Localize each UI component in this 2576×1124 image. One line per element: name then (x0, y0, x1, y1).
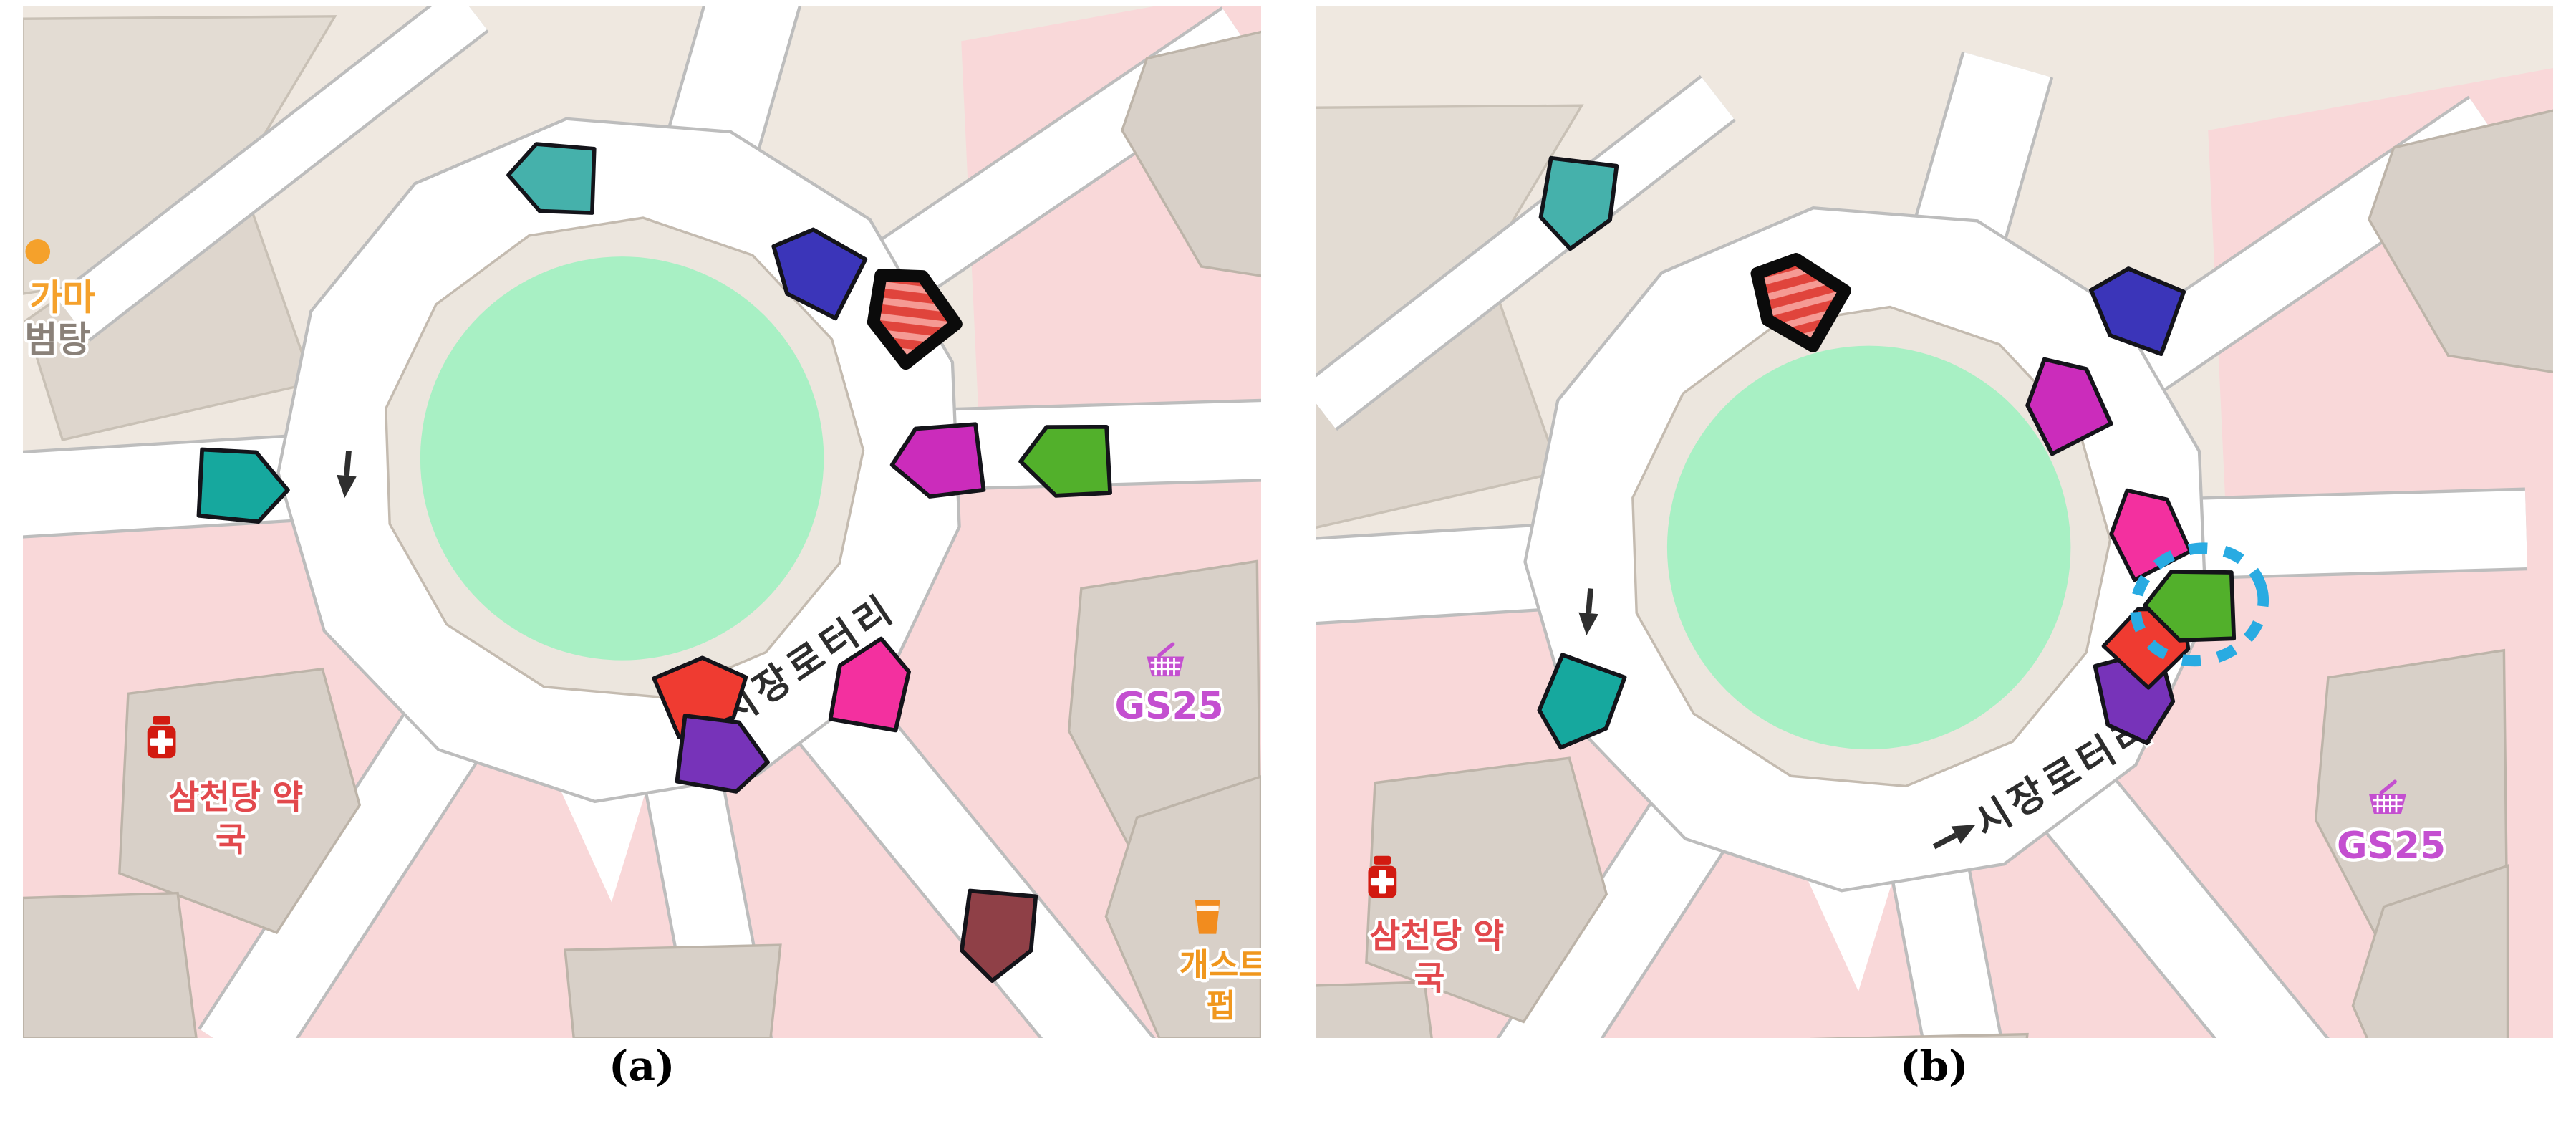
panel-b: 삼천당 약국GS25시장로터리 (b) (1316, 6, 2554, 1087)
map-base (23, 6, 1261, 1038)
poi-label: GS25 (1115, 685, 1224, 728)
poi-label: 국 (1414, 959, 1444, 998)
poi-label: 국 (216, 821, 246, 860)
map-panel-b: 삼천당 약국GS25시장로터리 (1316, 6, 2554, 1038)
caption-a: (a) (23, 1045, 1261, 1087)
poi-label: 범탕 (24, 318, 90, 360)
pharmacy-cross-icon (1370, 878, 1394, 885)
poi-label: 개스트 (1180, 946, 1261, 984)
shopping-basket-icon (1147, 656, 1184, 676)
map-panel-a: 삼천당 약국GS25개스트펍가마범탕시장로터리 (23, 6, 1261, 1038)
roundabout-green-center (1666, 346, 2070, 749)
shopping-basket-icon (2368, 794, 2406, 814)
beer-poi (1195, 900, 1220, 934)
caption-b: (b) (1316, 1045, 2554, 1087)
roundabout-green-center (420, 256, 824, 660)
building (23, 893, 196, 1038)
poi-label: 펍 (1207, 986, 1236, 1024)
building (565, 945, 781, 1038)
pharmacy-cross-icon (150, 739, 173, 746)
restaurant-marker-icon (25, 239, 50, 264)
poi-label: 가마 (29, 276, 95, 318)
figure-roundabout-comparison: 삼천당 약국GS25개스트펍가마범탕시장로터리 (a) 삼천당 약국GS25시장… (0, 0, 2576, 1087)
beer-foam-icon (1197, 906, 1219, 911)
panel-a: 삼천당 약국GS25개스트펍가마범탕시장로터리 (a) (23, 6, 1261, 1087)
pharmacy-cap-icon (153, 716, 170, 724)
map-base (1316, 6, 2554, 1038)
poi-label: 삼천당 약 (1369, 918, 1504, 956)
poi-label: GS25 (2337, 825, 2446, 868)
poi-label: 삼천당 약 (168, 779, 303, 817)
pharmacy-cap-icon (1374, 856, 1391, 865)
dot-poi (25, 239, 50, 264)
